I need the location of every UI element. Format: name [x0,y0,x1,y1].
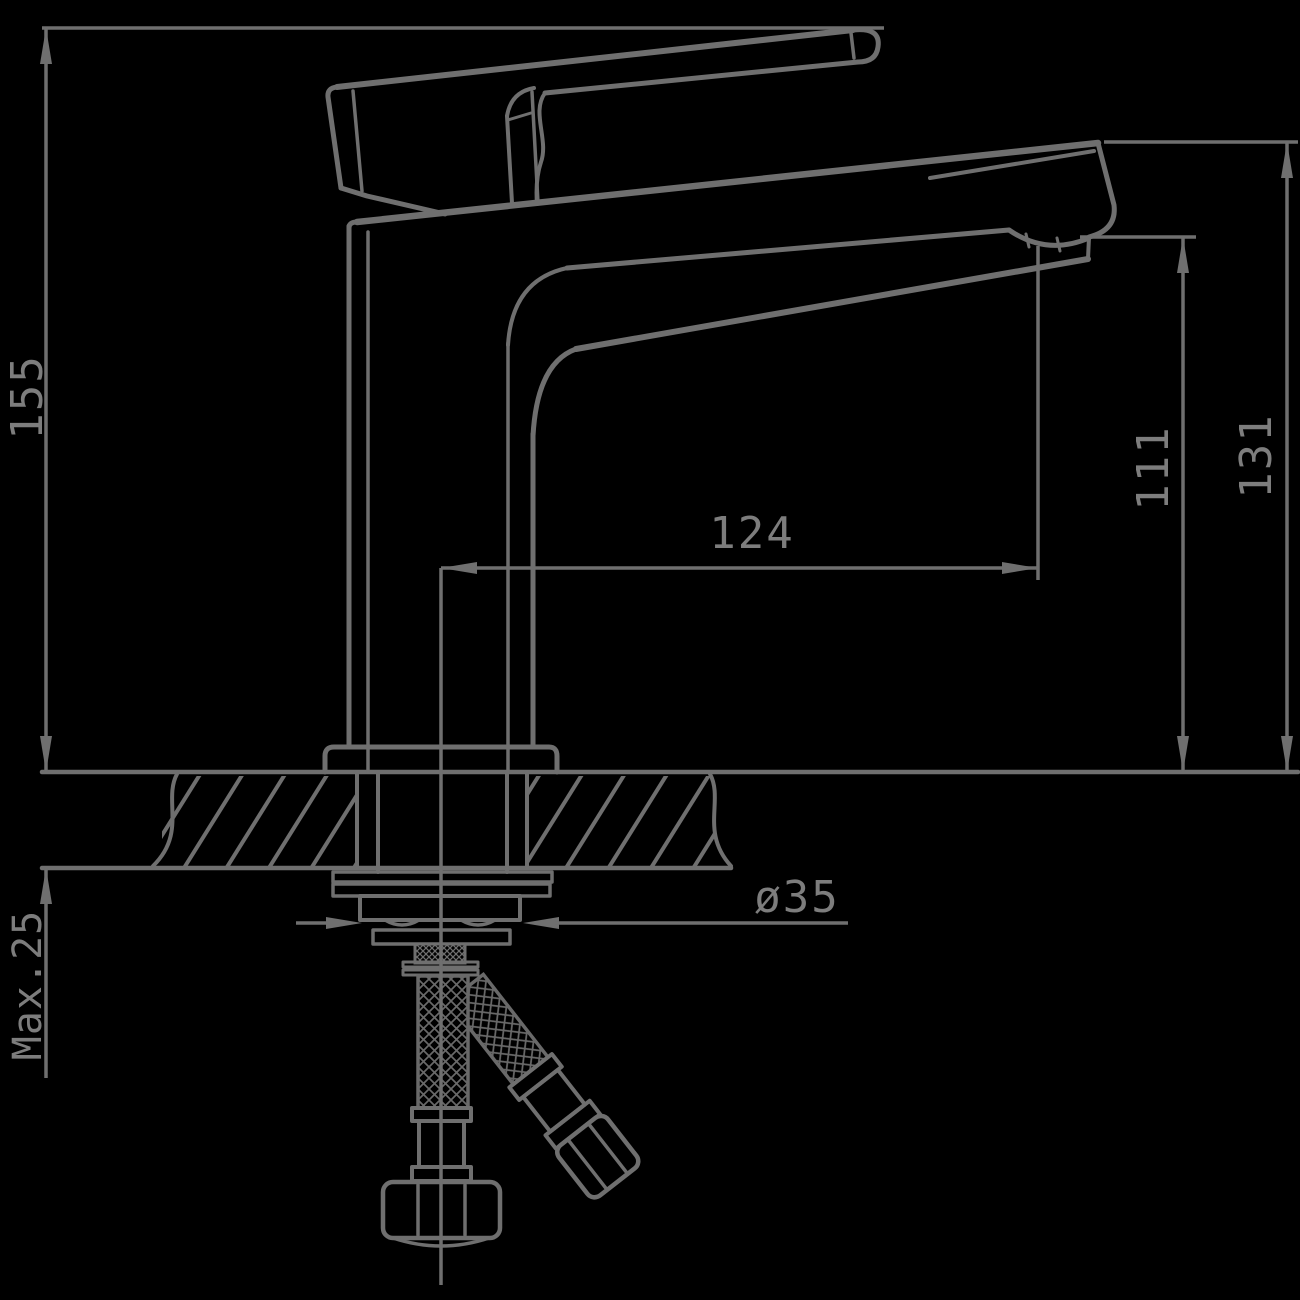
drawing-background [0,0,1300,1300]
countertop-hatch-right [527,776,715,866]
faucet-dimension-drawing: 155 Max.25 124 111 131 ø35 [0,0,1300,1300]
countertop-hatch-left [162,776,358,866]
dim-label-max-deck-thickness: Max.25 [5,910,51,1061]
dim-label-overall-height: 155 [2,354,53,439]
dim-label-spout-top-height: 131 [1231,413,1282,498]
technical-drawing-canvas: 155 Max.25 124 111 131 ø35 [0,0,1300,1300]
dim-label-spout-reach: 124 [709,508,794,559]
vertical-hose-braid [418,976,468,1108]
dim-label-hole-diameter: ø35 [754,872,839,923]
dim-label-aerator-height: 111 [1128,425,1179,510]
